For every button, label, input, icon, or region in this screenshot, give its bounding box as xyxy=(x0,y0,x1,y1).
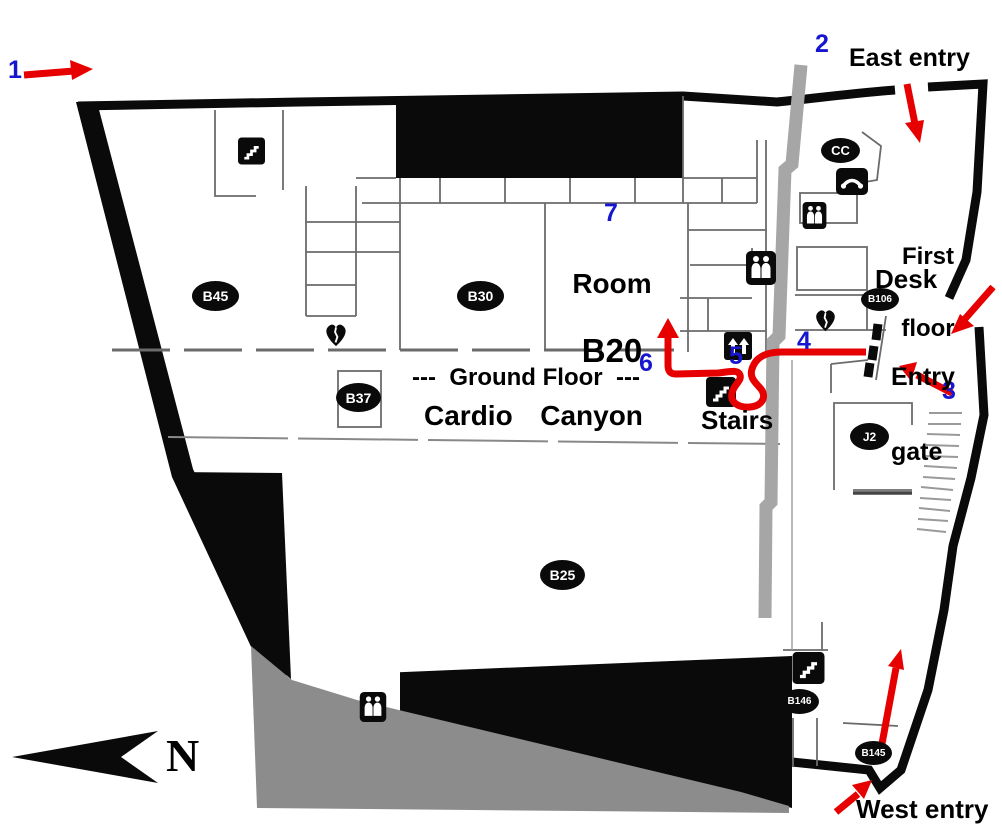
route-marker-5: 5 xyxy=(729,342,743,371)
hall-south-wall xyxy=(168,437,780,444)
ground-floor-label: --- Ground Floor --- xyxy=(412,366,640,390)
route-marker-1: 1 xyxy=(8,56,22,85)
restroom-icon xyxy=(360,692,386,722)
entry-gate-line1: Entry xyxy=(891,365,955,390)
aed-heart-icon xyxy=(816,310,835,331)
upper-walkway-band xyxy=(765,65,801,618)
route-marker-7: 7 xyxy=(604,199,618,228)
room-b20-line2: B20 xyxy=(547,334,677,367)
room-tag-b146: B146 xyxy=(780,689,819,714)
entry-gate-label: Entry gate xyxy=(891,315,955,515)
route-marker-4: 4 xyxy=(797,327,811,356)
room-tag-b25: B25 xyxy=(540,560,585,590)
north-compass-icon xyxy=(12,731,158,783)
north-label: N xyxy=(166,733,199,779)
phone-icon xyxy=(836,168,868,195)
stairs-label: Stairs xyxy=(701,407,773,433)
stairs-icon xyxy=(238,138,265,165)
room-b20-line1: Room xyxy=(547,270,677,298)
entry-gate-dashes xyxy=(868,324,878,377)
restroom-icon xyxy=(803,202,827,229)
room-tag-b145: B145 xyxy=(855,741,892,765)
room-tag-b106: B106 xyxy=(861,288,899,311)
room-tag-j2: J2 xyxy=(850,423,889,450)
stairs-icon xyxy=(793,652,825,684)
hall-name-label: Cardio Canyon xyxy=(424,402,643,430)
room-tag-b45: B45 xyxy=(192,281,239,311)
room-tag-b30: B30 xyxy=(457,281,504,311)
restroom-icon xyxy=(746,251,776,285)
floor-plan-map: 1 2 3 4 5 6 7 East entry First floor Des… xyxy=(0,0,1002,828)
route-marker-2: 2 xyxy=(815,30,829,59)
aed-heart-icon xyxy=(326,325,345,347)
room-tag-b37: B37 xyxy=(336,383,381,412)
west-entry-label: West entry xyxy=(856,796,988,822)
entry-gate-line2: gate xyxy=(891,440,955,465)
east-entry-label: East entry xyxy=(849,46,970,71)
wall-fill-regions xyxy=(76,100,792,808)
room-tag-cc: CC xyxy=(821,138,860,163)
